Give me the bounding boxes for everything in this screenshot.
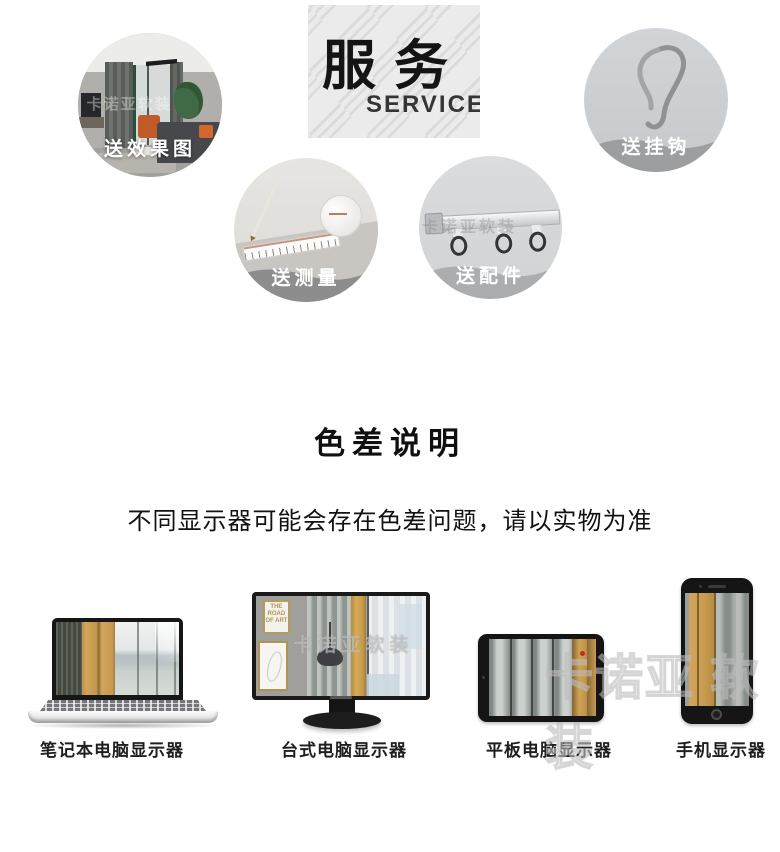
- device-label-tablet: 平板电脑显示器: [459, 736, 639, 761]
- phone-home-button: [711, 709, 722, 720]
- service-item-measure: 送测量: [234, 158, 378, 302]
- tablet-screen-image: [489, 639, 596, 716]
- watermark-text: 卡诺亚软装: [293, 630, 413, 657]
- service-item-hook: 送挂钩: [584, 28, 728, 172]
- red-dot: [580, 651, 585, 656]
- laptop-screen: [52, 618, 183, 700]
- service-label-effect: 送效果图: [78, 134, 222, 161]
- service-label-measure: 送测量: [234, 263, 378, 290]
- service-subtitle: SERVICE: [366, 91, 480, 119]
- curtain-gray-folds: [489, 639, 572, 716]
- laptop-screen-image: [56, 622, 179, 695]
- color-note-description: 不同显示器可能会存在色差问题，请以实物为准: [0, 501, 780, 536]
- curtain-rail: [426, 210, 560, 232]
- device-label-phone: 手机显示器: [641, 736, 780, 761]
- service-label-hook: 送挂钩: [584, 132, 728, 159]
- service-item-effect: 卡诺亚软装 送效果图: [78, 33, 222, 177]
- product-detail-page: 服务 SERVICE 卡诺亚: [0, 0, 780, 852]
- service-item-track: 卡诺亚软装 送配件: [419, 156, 562, 299]
- curtain-dark-panel: [56, 622, 82, 695]
- phone-speaker: [708, 585, 726, 588]
- service-title-block: 服务 SERVICE: [308, 5, 480, 138]
- room-plant: [174, 82, 203, 119]
- curtain-gold-panel: [572, 639, 596, 716]
- color-note-heading: 色差说明: [0, 418, 780, 463]
- wall-art-sketch: [258, 641, 289, 691]
- tablet-camera-dot: [482, 676, 485, 679]
- tablet-mockup: [478, 634, 604, 722]
- curtain-gold-panel: [82, 622, 115, 695]
- service-title: 服务: [308, 21, 480, 100]
- curtain-gray-folds: [716, 593, 749, 706]
- device-label-desktop: 台式电脑显示器: [254, 736, 434, 761]
- monitor-frame: THE ROAD OF ART 卡诺亚软装: [252, 592, 430, 700]
- monitor-screen-image: THE ROAD OF ART 卡诺亚软装: [256, 596, 426, 696]
- device-label-laptop: 笔记本电脑显示器: [22, 736, 202, 761]
- wall-art-frame: THE ROAD OF ART: [263, 600, 290, 634]
- monitor-logo: [330, 696, 351, 699]
- phone-mockup: [681, 578, 753, 724]
- room-tv: [81, 93, 101, 116]
- curtain-gold-panel: [689, 593, 715, 706]
- laptop-keyboard: [40, 700, 206, 711]
- phone-camera-dot: [699, 585, 702, 588]
- window-view: [115, 622, 179, 695]
- pencil: [251, 183, 277, 237]
- laptop-mockup: [28, 615, 218, 727]
- monitor-stand-base: [303, 712, 381, 729]
- service-label-track: 送配件: [419, 261, 562, 288]
- desktop-monitor-mockup: THE ROAD OF ART 卡诺亚软装: [250, 590, 434, 736]
- phone-screen-image: [685, 593, 749, 706]
